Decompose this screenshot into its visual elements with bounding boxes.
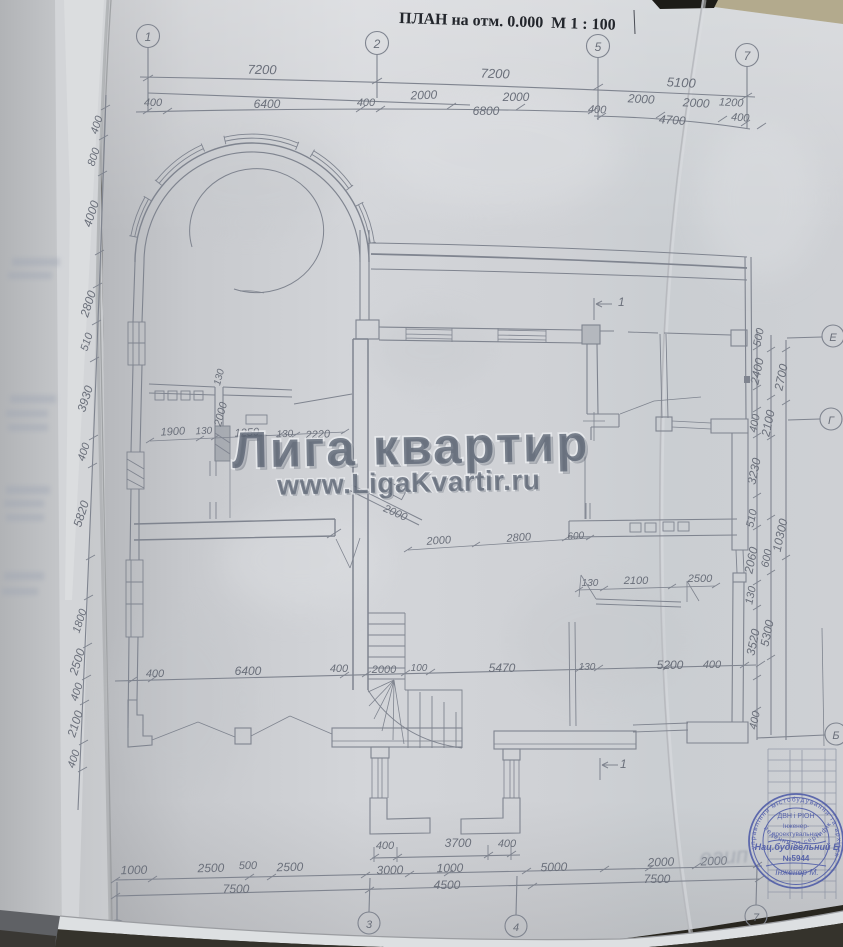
svg-text:2: 2 <box>373 37 381 51</box>
svg-text:ДВН і РІОН: ДВН і РІОН <box>777 812 814 820</box>
svg-text:2000: 2000 <box>371 664 397 676</box>
svg-text:Б: Б <box>832 730 839 742</box>
svg-text:3700: 3700 <box>445 836 472 850</box>
svg-text:400: 400 <box>330 663 349 675</box>
svg-text:№5944: №5944 <box>783 854 810 863</box>
svg-text:Е: Е <box>829 332 837 344</box>
svg-text:7500: 7500 <box>223 882 250 896</box>
svg-text:5: 5 <box>595 40 602 54</box>
svg-text:400: 400 <box>588 104 608 117</box>
svg-text:4500: 4500 <box>434 878 461 892</box>
svg-text:Г: Г <box>828 415 835 427</box>
svg-text:3000: 3000 <box>376 863 403 877</box>
svg-text:600: 600 <box>567 530 585 542</box>
svg-text:5100: 5100 <box>666 74 696 91</box>
svg-text:Інженер-: Інженер- <box>783 823 809 830</box>
svg-text:2800: 2800 <box>505 531 532 545</box>
svg-text:1: 1 <box>145 30 152 44</box>
svg-text:1: 1 <box>618 295 625 309</box>
svg-text:2500: 2500 <box>687 573 713 585</box>
svg-text:2100: 2100 <box>623 575 649 587</box>
svg-text:Нац.будівельний Б: Нац.будівельний Б <box>755 842 840 852</box>
svg-text:Інженер М.: Інженер М. <box>775 867 819 877</box>
svg-text:400: 400 <box>498 838 517 850</box>
svg-text:1: 1 <box>620 757 627 771</box>
svg-text:400: 400 <box>357 97 376 109</box>
svg-text:1000: 1000 <box>436 861 463 875</box>
svg-text:6400: 6400 <box>235 664 262 678</box>
svg-text:400: 400 <box>146 668 165 680</box>
svg-text:7200: 7200 <box>480 66 510 82</box>
svg-text:1900: 1900 <box>160 425 186 438</box>
svg-text:400: 400 <box>144 97 163 109</box>
svg-text:1200: 1200 <box>719 96 745 109</box>
svg-text:www.LigaKvartir.ru: www.LigaKvartir.ru <box>276 464 541 501</box>
svg-text:4: 4 <box>513 922 519 934</box>
svg-text:6400: 6400 <box>254 97 281 111</box>
svg-text:2500: 2500 <box>275 860 303 874</box>
svg-text:400: 400 <box>731 111 751 124</box>
svg-text:2000: 2000 <box>682 95 711 110</box>
svg-text:5470: 5470 <box>489 661 516 675</box>
svg-text:5200: 5200 <box>657 658 684 672</box>
svg-text:7200: 7200 <box>247 62 277 78</box>
svg-text:5000: 5000 <box>540 860 567 874</box>
svg-text:130: 130 <box>195 426 213 438</box>
svg-text:6800: 6800 <box>473 104 500 118</box>
svg-text:2000: 2000 <box>409 88 437 103</box>
svg-text:400: 400 <box>703 659 722 671</box>
svg-text:7: 7 <box>753 912 760 924</box>
svg-text:4700: 4700 <box>658 112 686 128</box>
svg-text:100: 100 <box>411 663 428 674</box>
svg-text:2000: 2000 <box>502 90 530 104</box>
svg-text:7500: 7500 <box>644 872 671 886</box>
svg-text:2000: 2000 <box>627 91 656 106</box>
svg-text:400: 400 <box>376 840 395 852</box>
svg-text:2000: 2000 <box>425 534 452 548</box>
svg-text:130: 130 <box>579 662 596 673</box>
svg-text:1000: 1000 <box>120 863 147 877</box>
svg-text:2000: 2000 <box>646 855 674 870</box>
svg-text:3: 3 <box>366 919 373 931</box>
svg-text:проектувальних: проектувальних <box>772 831 821 838</box>
svg-text:2500: 2500 <box>196 861 224 875</box>
svg-text:500: 500 <box>239 860 258 872</box>
svg-text:еаип: еаип <box>699 842 749 870</box>
